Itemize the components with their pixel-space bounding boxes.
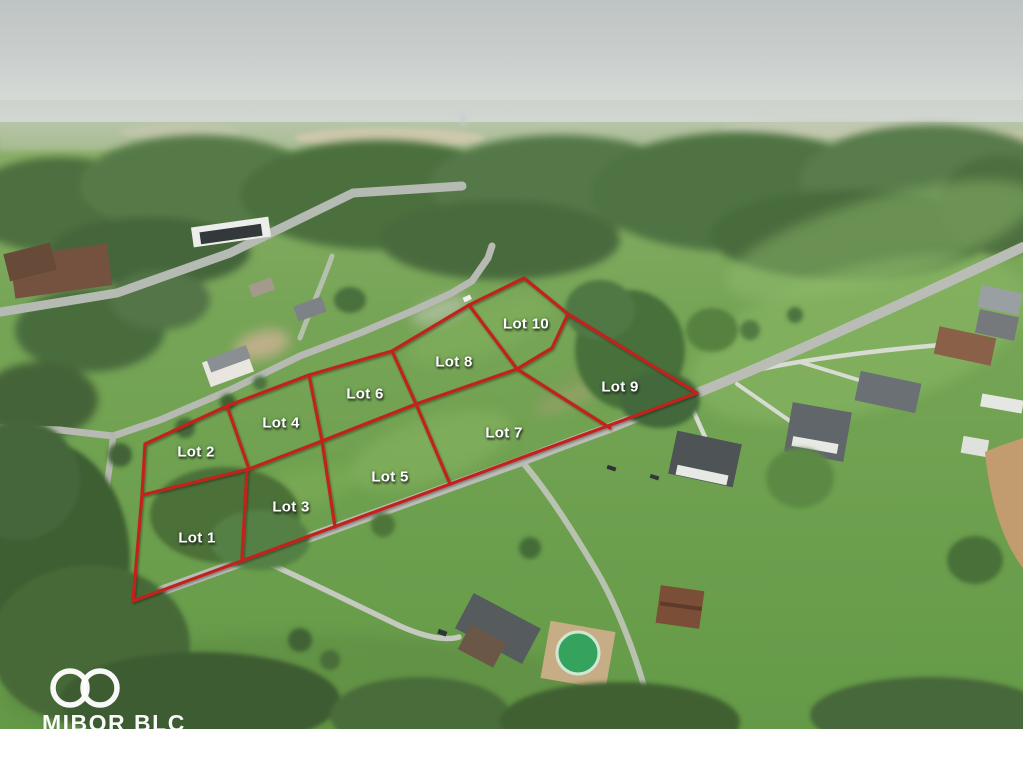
watermark-text: MIBOR BLC <box>42 710 192 729</box>
aerial-scene <box>0 0 1023 729</box>
swimming-pool <box>557 632 599 674</box>
infinity-logo-icon <box>42 666 134 710</box>
photo-area: Lot 1 Lot 2 Lot 3 Lot 4 Lot 5 Lot 6 Lot … <box>0 0 1023 729</box>
aerial-photo: Lot 1 Lot 2 Lot 3 Lot 4 Lot 5 Lot 6 Lot … <box>0 0 1023 767</box>
bottom-margin <box>0 729 1023 767</box>
watermark: MIBOR BLC <box>42 666 192 729</box>
